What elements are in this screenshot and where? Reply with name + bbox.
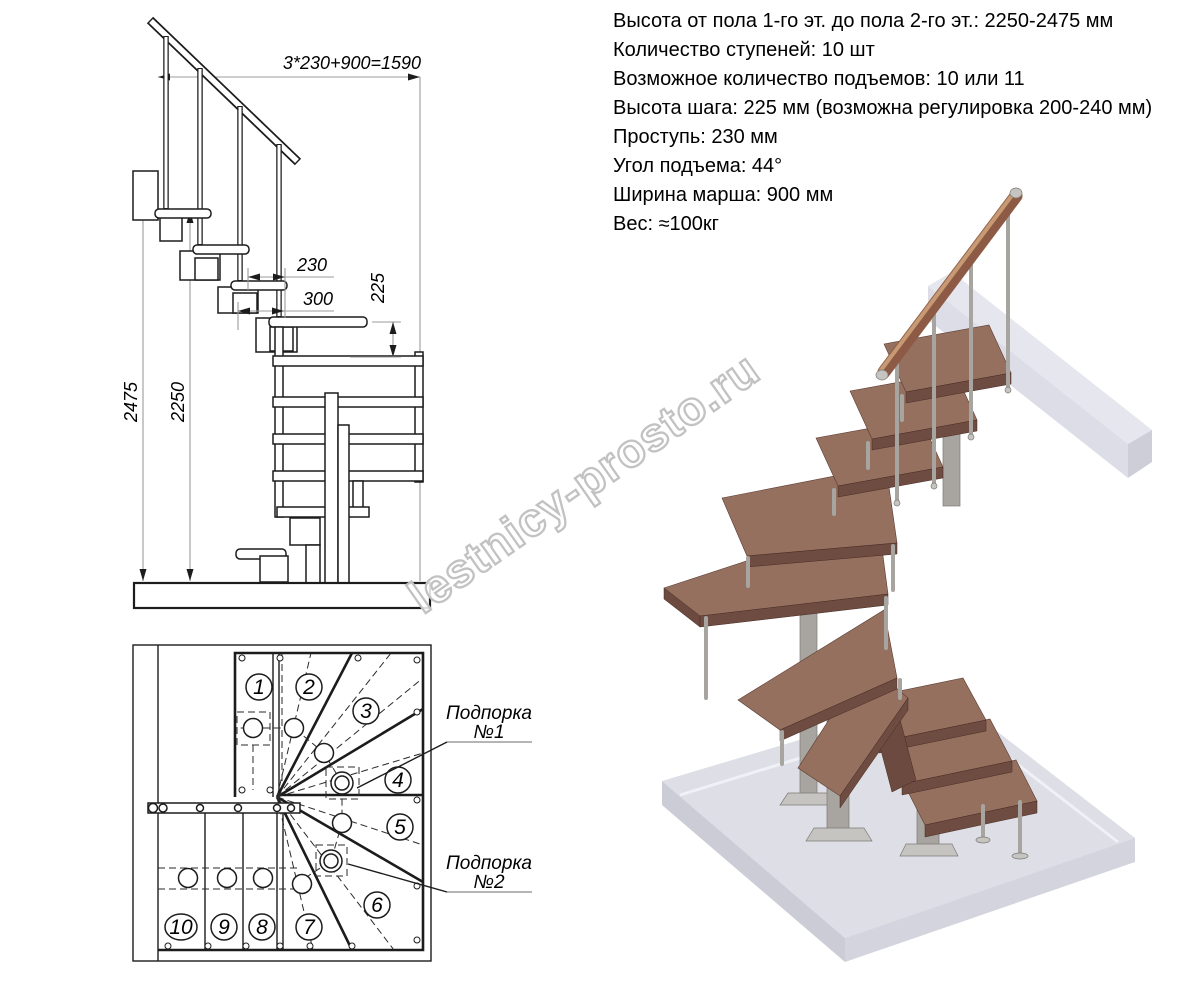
- dim-total-run: 3*230+900=1590: [283, 53, 421, 73]
- plan-support-post-2: [320, 850, 342, 872]
- support-2-line1: Подпорка: [446, 853, 532, 874]
- spec-line-height: Высота от пола 1-го эт. до пола 2-го эт.…: [613, 7, 1152, 36]
- plan-step-number: 9: [218, 916, 230, 939]
- support-1-line1: Подпорка: [446, 703, 532, 724]
- spec-line-width: Ширина марша: 900 мм: [613, 181, 1152, 210]
- elevation-lower-flight: [236, 327, 423, 583]
- plan-step-number: 4: [392, 769, 404, 792]
- spec-line-tread: Проступь: 230 мм: [613, 123, 1152, 152]
- dim-module-depth: 300: [303, 289, 333, 309]
- plan-step-number: 2: [302, 676, 315, 699]
- plan-step-number: 5: [394, 816, 406, 839]
- plan-step-number: 8: [256, 916, 268, 939]
- support-label-1: Подпорка №1: [357, 703, 532, 788]
- spec-line-step-count: Количество ступеней: 10 шт: [613, 36, 1152, 65]
- plan-handrail-bar: [148, 803, 300, 813]
- plan-step-separators: [205, 653, 283, 950]
- dim-step-rise: 225: [368, 272, 388, 304]
- spec-line-rises: Возможное количество подъемов: 10 или 11: [613, 65, 1152, 94]
- floor-slab: [134, 583, 430, 608]
- plan-step-number: 1: [253, 676, 265, 699]
- plan-step-number: 3: [360, 700, 372, 723]
- plan-step-number: 10: [169, 916, 193, 939]
- spec-line-weight: Вес: ≈100кг: [613, 210, 1152, 239]
- specs-block: Высота от пола 1-го эт. до пола 2-го эт.…: [613, 7, 1152, 239]
- plan-support-post-1: [331, 772, 353, 794]
- plan-step-number: 6: [371, 894, 383, 917]
- dim-floor-to-top-step: 2250: [168, 382, 188, 423]
- plan-winder-lines: [277, 653, 423, 950]
- plan-view: 1 2 3 4 5 6 7 8 9 10 Подпорка №1 Подпорк…: [133, 645, 532, 961]
- support-1-line2: №1: [473, 722, 504, 743]
- render-3d: [662, 188, 1152, 962]
- spec-line-angle: Угол подъема: 44°: [613, 152, 1152, 181]
- support-label-2: Подпорка №2: [348, 853, 532, 893]
- wall-bracket: [133, 171, 158, 220]
- staircase-drawing-sheet: 3*230+900=1590: [0, 0, 1191, 993]
- spec-line-step-height: Высота шага: 225 мм (возможна регулировк…: [613, 94, 1152, 123]
- support-2-line2: №2: [473, 872, 505, 893]
- elevation-handrail: [150, 20, 298, 162]
- plan-step-number: 7: [303, 916, 316, 939]
- elevation-view: 3*230+900=1590: [121, 20, 430, 608]
- dim-tread-depth: 230: [296, 255, 327, 275]
- dim-floor-to-floor: 2475: [121, 381, 141, 423]
